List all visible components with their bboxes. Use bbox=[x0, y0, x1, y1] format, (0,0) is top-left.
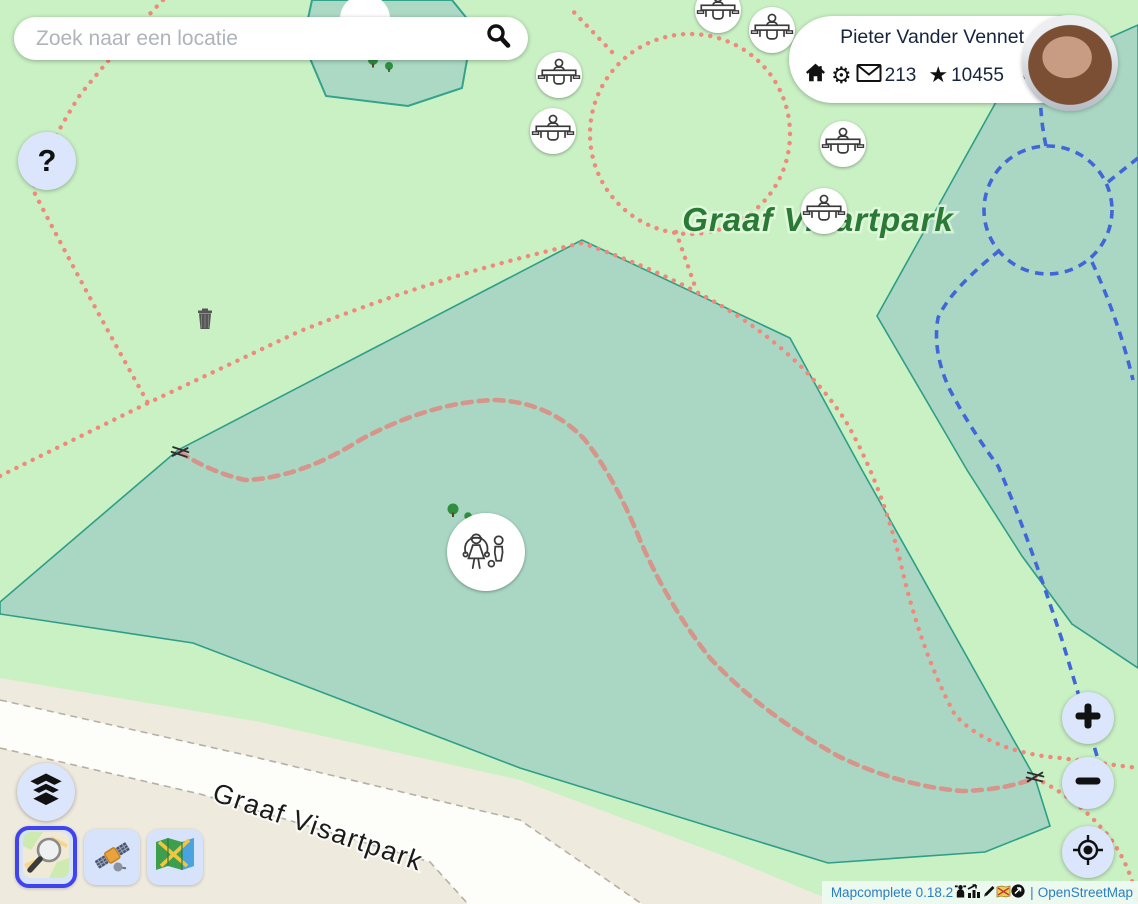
zoom-out-button[interactable] bbox=[1062, 757, 1114, 809]
folded-map-icon bbox=[151, 831, 199, 884]
layers-icon bbox=[26, 771, 66, 814]
osm-link[interactable]: OpenStreetMap bbox=[1038, 885, 1133, 900]
envelope-icon[interactable] bbox=[856, 63, 882, 89]
plus-icon bbox=[1073, 701, 1103, 736]
mapcomplete-app: Graaf Visartpark Graaf Visartpark bbox=[0, 0, 1138, 904]
app-name-link[interactable]: Mapcomplete bbox=[831, 885, 912, 900]
statistics-person-icon[interactable] bbox=[954, 884, 967, 901]
message-count: 213 bbox=[885, 65, 917, 87]
picnic-table-marker[interactable] bbox=[749, 7, 795, 53]
community-icon[interactable] bbox=[1011, 884, 1025, 901]
user-stats-row: ⚙ 213 ★ 10455 bbox=[804, 61, 1044, 90]
gear-icon[interactable]: ⚙ bbox=[831, 63, 852, 89]
help-button[interactable]: ? bbox=[18, 132, 76, 190]
playground-marker[interactable] bbox=[447, 513, 525, 591]
help-label: ? bbox=[38, 143, 57, 179]
pencil-icon[interactable] bbox=[982, 884, 996, 901]
star-count: 10455 bbox=[951, 65, 1004, 87]
attribution-separator: | bbox=[1030, 885, 1034, 900]
star-icon: ★ bbox=[928, 63, 948, 88]
attribution-icons bbox=[954, 884, 1025, 901]
geolocate-button[interactable] bbox=[1062, 826, 1114, 878]
osm-carto-thumbnail-icon bbox=[23, 832, 69, 883]
crosshair-icon bbox=[1071, 833, 1105, 872]
picnic-table-marker[interactable] bbox=[536, 52, 582, 98]
search-input[interactable] bbox=[34, 26, 484, 52]
avatar[interactable] bbox=[1022, 15, 1118, 111]
search-icon[interactable] bbox=[484, 22, 512, 55]
zoom-in-button[interactable] bbox=[1062, 692, 1114, 744]
background-layer-satellite[interactable] bbox=[84, 829, 140, 885]
minus-icon bbox=[1073, 766, 1103, 801]
background-layer-osm-carto[interactable] bbox=[15, 826, 77, 888]
map-icon[interactable] bbox=[996, 885, 1011, 901]
satellite-icon bbox=[88, 831, 136, 884]
layers-button[interactable] bbox=[17, 763, 75, 821]
background-layer-folded-map[interactable] bbox=[147, 829, 203, 885]
app-version: 0.18.2 bbox=[916, 885, 954, 900]
picnic-table-marker[interactable] bbox=[801, 188, 847, 234]
user-name: Pieter Vander Vennet bbox=[840, 26, 1024, 49]
picnic-table-marker[interactable] bbox=[820, 121, 866, 167]
attribution-bar: Mapcomplete 0.18.2 | OpenStreetMap bbox=[822, 881, 1138, 904]
search-bar bbox=[14, 17, 528, 60]
statistics-chart-icon[interactable] bbox=[967, 884, 982, 901]
home-icon[interactable] bbox=[804, 62, 827, 90]
picnic-table-marker[interactable] bbox=[695, 0, 741, 33]
picnic-table-marker[interactable] bbox=[530, 108, 576, 154]
